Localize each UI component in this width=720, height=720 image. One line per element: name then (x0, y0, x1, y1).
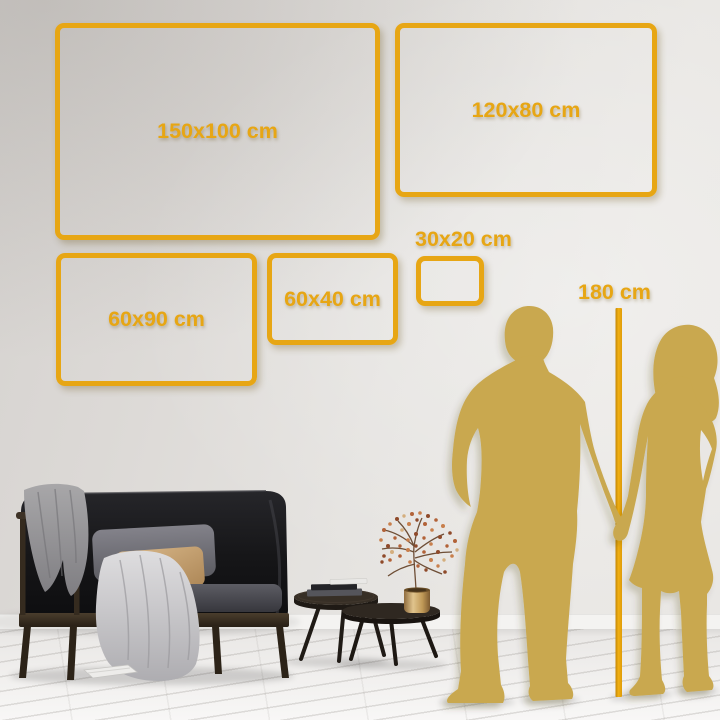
man-body (447, 356, 626, 703)
sofa (16, 484, 289, 681)
branch-blossoms (379, 511, 458, 574)
size-guide-scene: 150x100 cm 120x80 cm 60x90 cm 60x40 cm 3… (0, 0, 720, 720)
height-pole (616, 308, 623, 697)
couple-silhouettes (447, 306, 719, 703)
size-frame-150x100: 150x100 cm (55, 23, 380, 240)
dried-branch (379, 511, 458, 590)
height-marker-label: 180 cm (578, 281, 651, 303)
size-frame-label-30x20: 30x20 cm (415, 228, 512, 250)
size-frame-label: 150x100 cm (157, 119, 278, 144)
man-silhouette (447, 306, 626, 703)
size-frame-30x20 (416, 256, 484, 306)
brass-vase (404, 587, 430, 613)
size-frame-60x90: 60x90 cm (56, 253, 257, 386)
size-frame-label: 60x90 cm (108, 307, 205, 332)
size-frame-120x80: 120x80 cm (395, 23, 657, 197)
woman-body (613, 377, 717, 696)
size-frame-label: 60x40 cm (284, 287, 381, 312)
woman-silhouette (613, 325, 719, 696)
size-frame-label: 120x80 cm (472, 98, 581, 123)
size-frame-60x40: 60x40 cm (267, 253, 398, 345)
stacked-books (307, 579, 367, 597)
